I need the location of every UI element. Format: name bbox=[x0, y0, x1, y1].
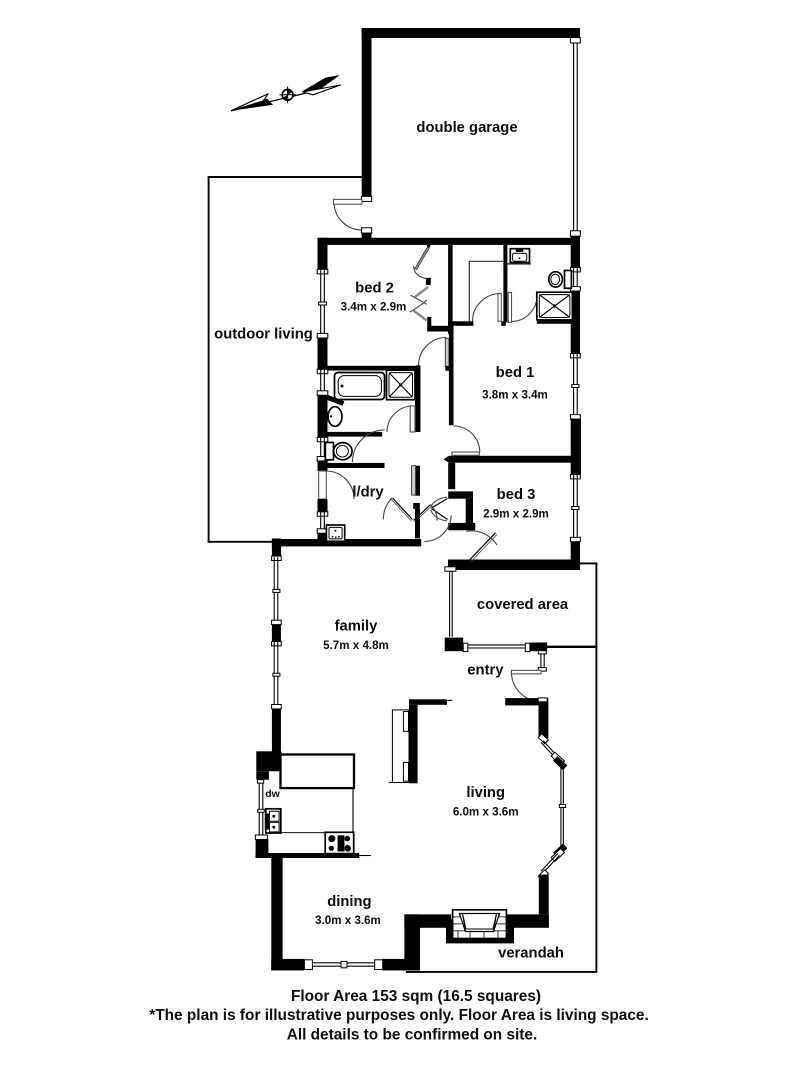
svg-text:family: family bbox=[335, 619, 379, 635]
svg-text:5.7m x 4.8m: 5.7m x 4.8m bbox=[323, 639, 389, 652]
svg-text:entry: entry bbox=[467, 663, 504, 679]
svg-text:*The plan is for illustrative: *The plan is for illustrative purposes o… bbox=[149, 1007, 648, 1024]
svg-text:bed 2: bed 2 bbox=[355, 281, 394, 297]
svg-text:3.4m x 2.9m: 3.4m x 2.9m bbox=[341, 301, 407, 314]
svg-text:outdoor living: outdoor living bbox=[214, 327, 313, 343]
svg-text:covered area: covered area bbox=[477, 597, 569, 613]
svg-text:3.0m x 3.6m: 3.0m x 3.6m bbox=[315, 914, 381, 927]
svg-text:dw: dw bbox=[265, 788, 280, 800]
svg-text:dining: dining bbox=[327, 894, 371, 910]
svg-text:double garage: double garage bbox=[416, 120, 517, 136]
svg-text:3.8m x 3.4m: 3.8m x 3.4m bbox=[482, 389, 548, 402]
svg-text:living: living bbox=[466, 785, 505, 801]
svg-text:l/dry: l/dry bbox=[352, 485, 384, 501]
svg-text:verandah: verandah bbox=[498, 946, 564, 962]
svg-text:bed 3: bed 3 bbox=[497, 487, 536, 503]
svg-text:6.0m x 3.6m: 6.0m x 3.6m bbox=[453, 806, 519, 819]
svg-text:2.9m x 2.9m: 2.9m x 2.9m bbox=[483, 508, 549, 521]
svg-text:Floor Area 153 sqm (16.5 squar: Floor Area 153 sqm (16.5 squares) bbox=[291, 988, 541, 1005]
svg-text:All details to be confirmed on: All details to be confirmed on site. bbox=[287, 1027, 538, 1044]
svg-text:bed 1: bed 1 bbox=[496, 365, 535, 381]
